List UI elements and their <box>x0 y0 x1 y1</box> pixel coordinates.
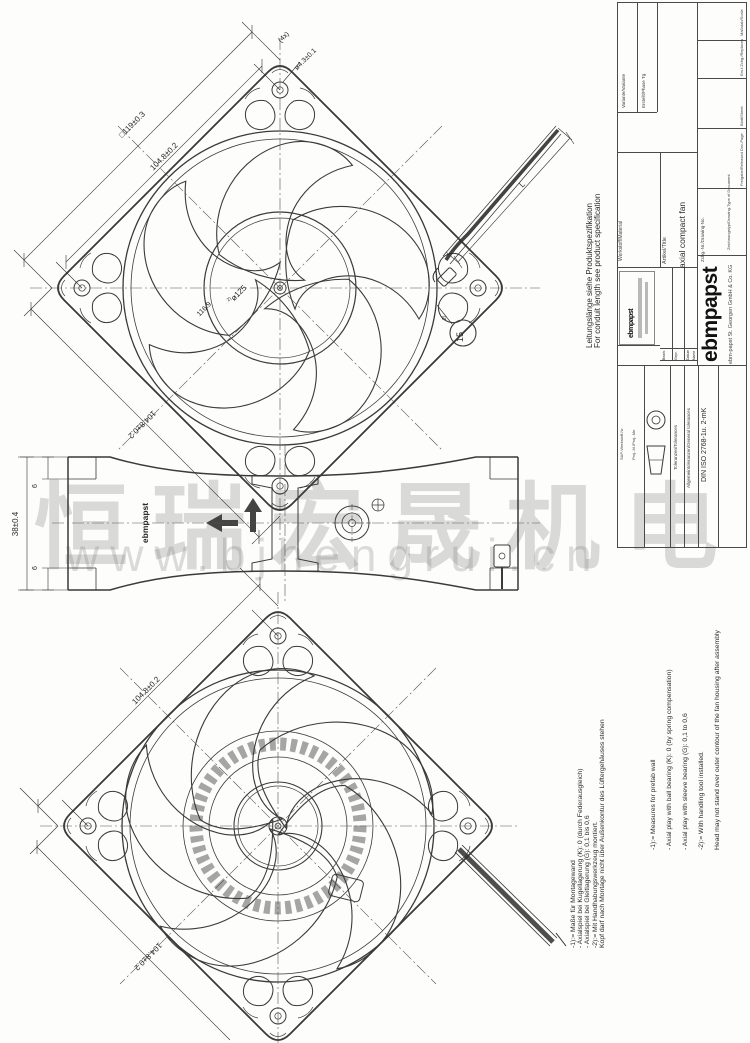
lead-wire-back <box>455 845 566 946</box>
stamp-marking <box>638 278 642 338</box>
head-callout-value: 15 <box>456 324 465 342</box>
housing-logo: ebmpapst <box>141 496 150 550</box>
title-block-border <box>617 2 618 547</box>
border-line <box>697 2 698 365</box>
stamp-logo: ebmpapst <box>628 276 635 338</box>
cable-length-note: Leitungslänge siehe Produktspezifikation… <box>586 168 603 348</box>
stamp-marking <box>645 282 648 334</box>
border-line <box>617 345 660 346</box>
border-line <box>697 78 746 79</box>
cable-head <box>437 267 457 287</box>
sap-material-label: SAP-Werkstoff-Nr. <box>620 370 624 460</box>
release-label: Freigabe/Released Doc-Page <box>740 132 744 186</box>
company-logo: ebmpapst <box>700 258 722 362</box>
drawing-sheet: 恒瑞宏晟机电 www.bjhengrui.cn <box>0 0 750 1043</box>
border-line <box>660 152 661 267</box>
dim-flange-top: 6 <box>32 478 39 494</box>
approval-name: Name <box>693 350 697 360</box>
border-line <box>617 152 697 153</box>
back-view <box>20 568 566 1043</box>
lead-wire <box>433 126 561 282</box>
border-line <box>617 112 657 113</box>
company-name: ebm-papst St. Georgen GmbH & Co. KG <box>729 258 735 364</box>
projection-label: Proj.-M./Proj.-Me. <box>632 370 636 460</box>
scale-label: Maßstab/Scale <box>740 6 744 36</box>
cable-note-en: For conduit length see product specifica… <box>594 168 602 348</box>
border-line <box>617 365 747 366</box>
article-value: axial compact fan <box>678 156 687 268</box>
border-line <box>672 267 673 360</box>
variant-label: Variante/Variante <box>622 6 627 108</box>
notes-english: -1):= Measures for prefab wall - Axial p… <box>646 385 726 850</box>
dim-flange-bottom: 6 <box>32 560 39 576</box>
approval-datum: Datum <box>687 350 691 360</box>
dim-depth: 38±0.4 <box>12 478 20 570</box>
drawing-linework <box>0 0 750 1043</box>
notes-german: -1):= Maße für Montagewand - Axialspiel … <box>570 388 606 948</box>
replaces-label: Ers.f.Zchg./Replaces <box>740 44 744 76</box>
border-line <box>746 2 747 547</box>
material-label: Werkstoff/Material <box>619 156 624 261</box>
airflow-arrows <box>206 498 262 532</box>
border-line <box>644 365 645 547</box>
border-line <box>660 360 697 361</box>
border-line <box>697 128 746 129</box>
approval-bearb: Bearb. <box>663 350 667 360</box>
side-view <box>18 444 540 602</box>
border-line <box>697 188 746 189</box>
doc-type-label: Zeichnungstyp/Drawing-Type of Document <box>727 130 731 250</box>
border-line <box>657 2 658 112</box>
phase-label: Erstellt/Phase Tg <box>642 6 647 108</box>
cable-clamp <box>494 545 510 567</box>
drawing-no-label: Zchg.-Nr./Drawing-No. <box>701 192 706 262</box>
sheet-label: Blatt/Sheet <box>740 82 744 126</box>
border-line <box>684 267 685 360</box>
approval-gepr: Gepr. <box>675 350 679 360</box>
border-line <box>660 348 697 349</box>
dim-lines-side <box>18 457 68 590</box>
article-label: Artikel/Title <box>663 156 669 264</box>
head-callout-ref: 2) <box>443 310 448 320</box>
release-stamp: ebmpapst <box>619 271 655 345</box>
border-line <box>637 2 638 112</box>
